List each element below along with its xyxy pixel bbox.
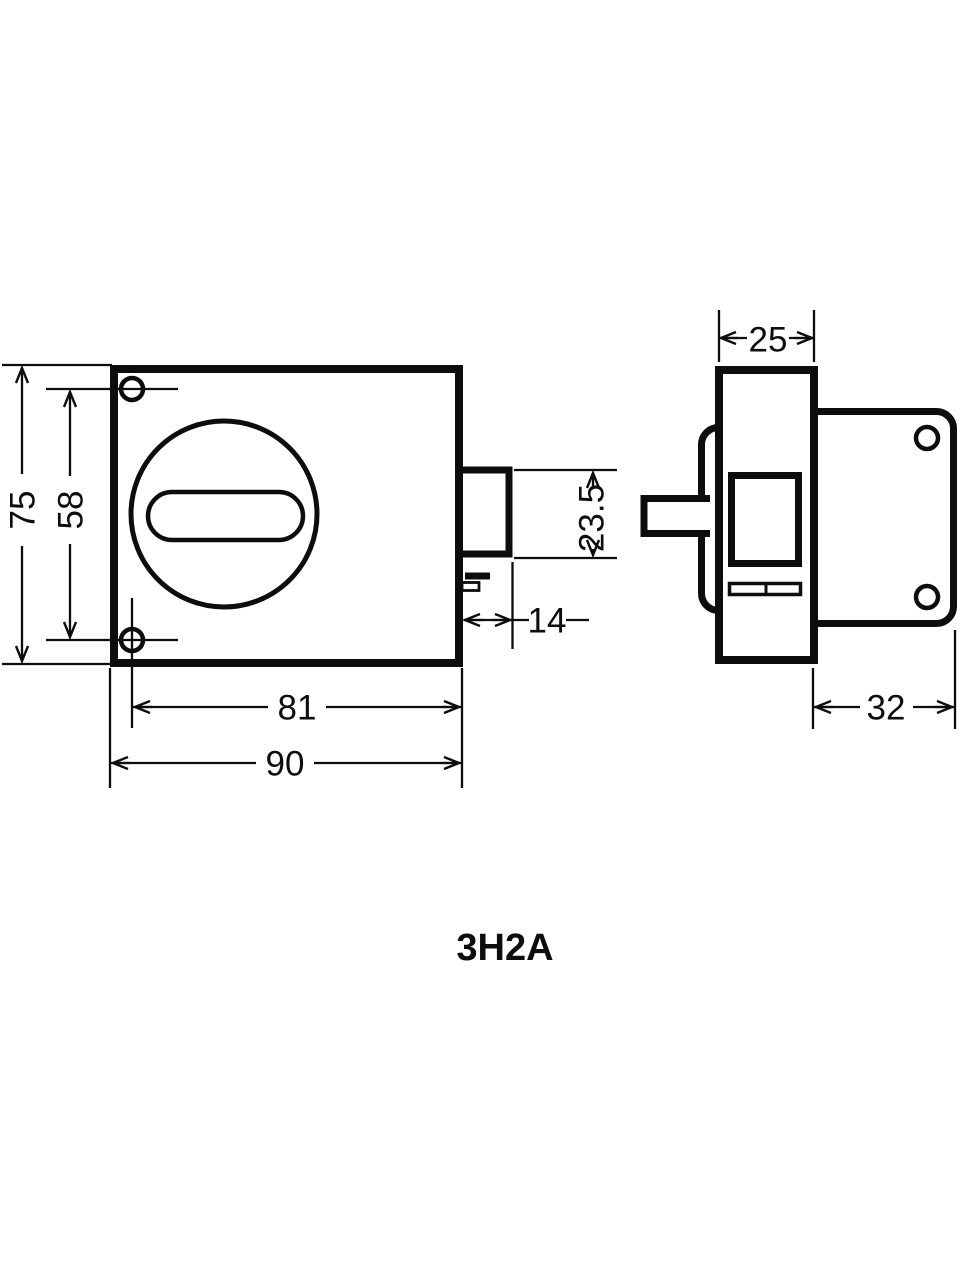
deadbolt-front: [455, 470, 509, 554]
dim-value-overall-height: 75: [4, 491, 43, 530]
dim-value-bolt-throw: 14: [528, 602, 567, 641]
dim-value-hole-span: 81: [278, 689, 317, 728]
dim-value-hole-spacing: 58: [52, 491, 91, 530]
dim-value-overall-width: 90: [266, 745, 305, 784]
dim-value-case-depth: 25: [749, 321, 788, 360]
dim-value-plate-depth: 32: [867, 689, 906, 728]
side-view: [644, 370, 954, 660]
dim-bolt-height: 23.5: [514, 470, 617, 558]
lock-dimension-drawing: 75 58 23.5 14 81: [0, 0, 960, 1280]
lock-case-front: [114, 369, 459, 663]
thumbturn-stem-side: [644, 499, 710, 534]
slide-stop-button: [462, 583, 479, 591]
slide-stop-button-bar: [465, 573, 490, 580]
dim-value-bolt-height: 23.5: [573, 484, 612, 552]
model-label: 3H2A: [456, 927, 553, 969]
dim-overall-width: 90: [110, 668, 461, 788]
front-view: [114, 369, 509, 663]
dim-case-depth: 25: [719, 310, 814, 362]
dim-plate-depth: 32: [813, 630, 955, 729]
technical-drawing-canvas: 75 58 23.5 14 81: [0, 0, 960, 1280]
